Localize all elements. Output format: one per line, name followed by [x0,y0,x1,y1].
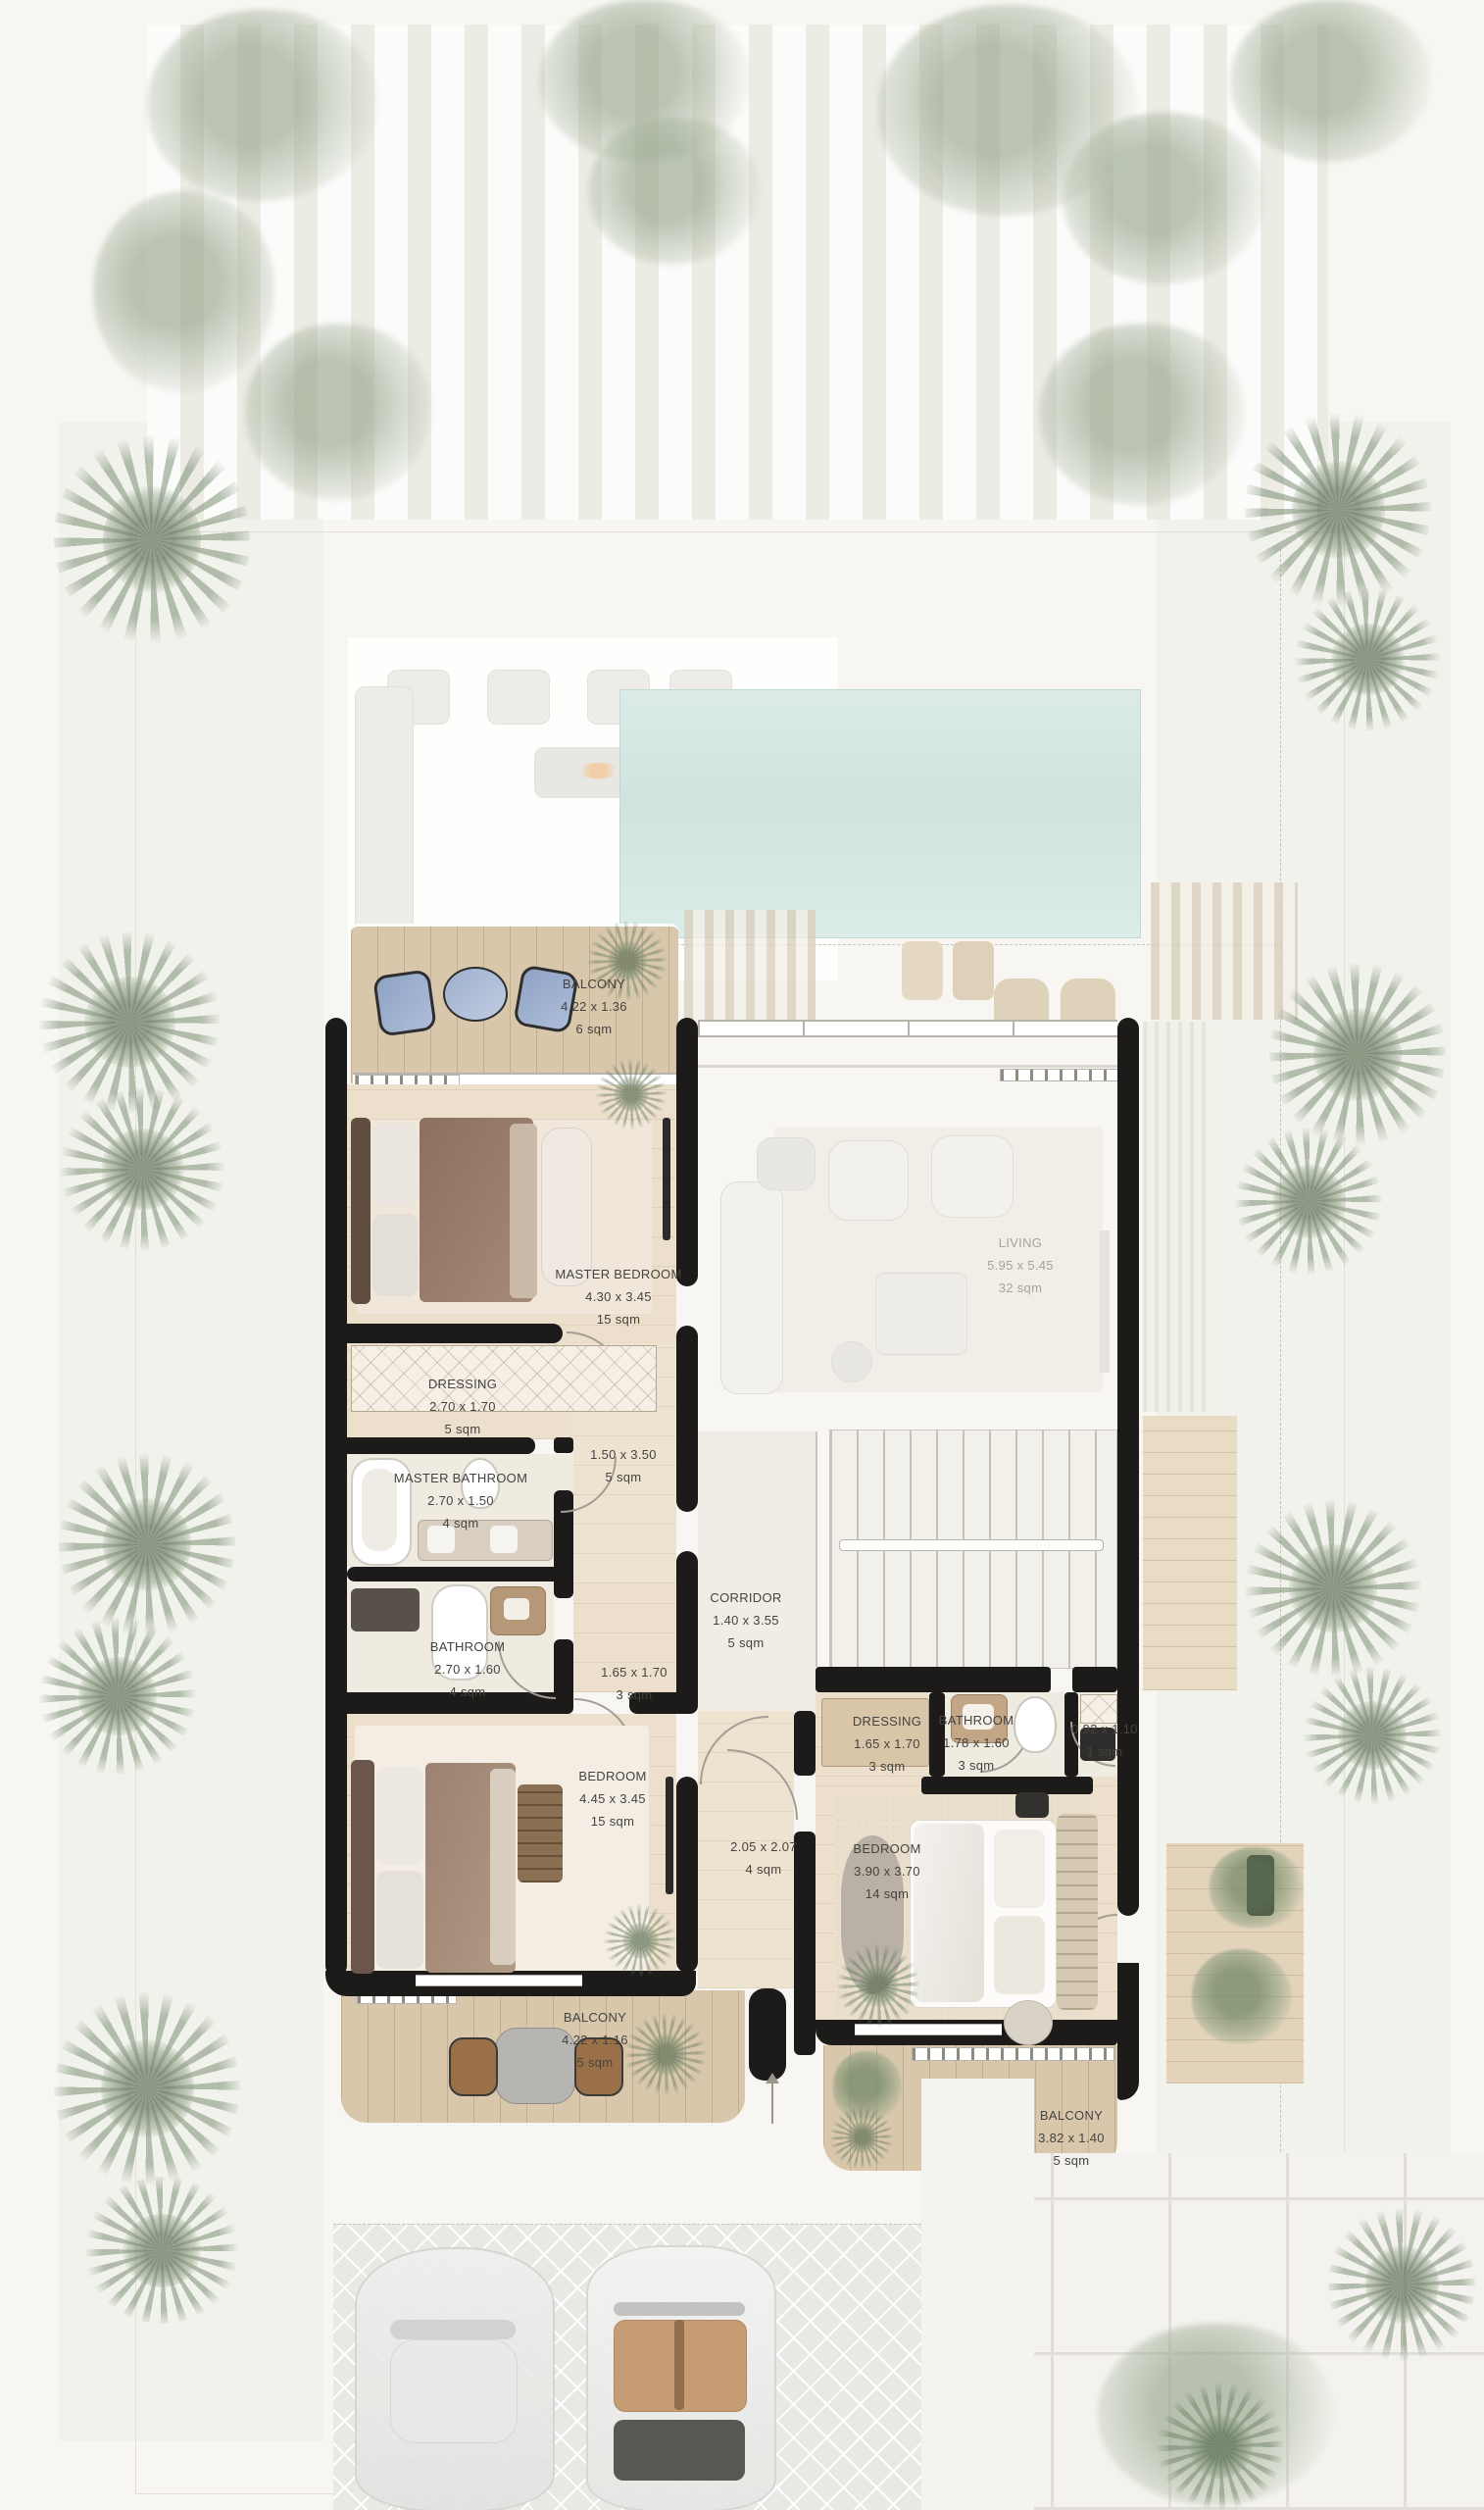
room-dims: 3.90 x 3.70 [853,1860,920,1882]
sink [504,1598,529,1620]
wall [347,1567,565,1581]
palm-icon [39,931,221,1113]
room-dims: 4.30 x 3.45 [555,1285,681,1308]
palm-icon [1294,588,1441,730]
wall [794,1832,816,2055]
path-arrow-head [766,2073,779,2083]
tree-icon [588,118,760,265]
room-dims: 1.40 x 3.55 [710,1609,781,1631]
tv-console [666,1777,673,1894]
tv-console [663,1118,670,1240]
room-label-master-bathroom: MASTER BATHROOM 2.70 x 1.50 4 sqm [394,1467,527,1534]
room-area: 14 sqm [853,1882,920,1905]
room-name: BEDROOM [578,1765,646,1787]
room-name: BALCONY [1038,2104,1105,2127]
room-label-dressing-left: DRESSING 2.70 x 1.70 5 sqm [428,1373,497,1440]
bed-duvet [914,1824,984,2002]
armchair [931,1135,1014,1218]
pool [619,689,1141,938]
room-area: 4 sqm [730,1858,797,1881]
balcony-table [443,967,508,1022]
bed-pillows [372,1214,418,1296]
room-label-dressing-right: DRESSING 1.65 x 1.70 3 sqm [853,1710,921,1778]
palm-icon [83,2177,240,2324]
wall [676,1777,698,1973]
wall [1072,1667,1117,1692]
room-dims: 0.92 x 1.10 [1071,1718,1138,1740]
window-bedroom-left [416,1975,582,1986]
plant-icon [837,1943,919,2028]
palm-icon [1328,2206,1475,2363]
wall [794,1711,816,1776]
room-area: 15 sqm [578,1810,646,1832]
room-label-upper-hall: 1.50 x 3.50 5 sqm [590,1443,657,1488]
room-area: 15 sqm [555,1308,681,1330]
bed-pillows [376,1871,423,1969]
tree-icon [1230,0,1431,162]
palm-icon [39,1618,196,1775]
coffee-table [875,1273,967,1355]
car-windshield [390,2320,516,2339]
wall [554,1437,573,1453]
plant-icon [596,1059,667,1129]
bed-sheet-fold [490,1769,516,1965]
tv-panel [1100,1230,1110,1373]
room-name: BALCONY [562,2006,628,2029]
balcony-chair [449,2037,498,2096]
room-label-corridor: CORRIDOR 1.40 x 3.55 5 sqm [710,1586,781,1654]
outdoor-sofa [355,686,414,938]
room-name: BALCONY [561,973,627,995]
wall [749,1988,786,2081]
fire-flame-icon [573,763,622,778]
wall [325,1324,563,1343]
room-name: MASTER BEDROOM [555,1263,681,1285]
bed-headboard [351,1760,374,1974]
room-label-bathroom-right: BATHROOM 1.78 x 1.60 3 sqm [939,1709,1014,1777]
palm-icon [59,1088,225,1250]
room-dims: 4.22 x 1.36 [561,995,627,1018]
sofa [720,1181,783,1394]
path-arrow [771,2083,773,2124]
car-seat-divider [674,2320,684,2410]
room-area: 5 sqm [590,1466,657,1488]
bed-sheet-fold [510,1124,537,1298]
bed-pillows [994,1916,1045,1994]
nightstand [1015,1792,1049,1818]
bathtub-inner [362,1469,397,1551]
room-area: 1 sqm [1071,1740,1138,1763]
room-area: 6 sqm [561,1018,627,1040]
living-rail-ticks [1000,1069,1119,1081]
room-dims: 2.70 x 1.60 [430,1658,506,1681]
room-label-vestibule-left: 1.65 x 1.70 3 sqm [601,1661,668,1706]
path-strip [921,2079,1034,2510]
tree-icon [147,10,377,201]
balcony-rail-bottom-right [912,2047,1114,2061]
room-name: LIVING [987,1231,1054,1254]
palm-icon [1157,2383,1284,2510]
room-label-bedroom-left: BEDROOM 4.45 x 3.45 15 sqm [578,1765,646,1832]
room-name: BATHROOM [430,1635,506,1658]
room-dims: 5.95 x 5.45 [987,1254,1054,1277]
bed-pillows [376,1767,423,1865]
tree-icon [245,324,431,500]
living-glazing [698,1020,1117,1037]
room-name: MASTER BATHROOM [394,1467,527,1489]
room-name: BEDROOM [853,1837,920,1860]
bed-pillows [994,1830,1045,1908]
room-name: DRESSING [853,1710,921,1732]
bush-icon [1210,1847,1304,1928]
stair-edge-line [816,1431,817,1667]
lounge-chair [487,670,550,725]
pool-towel [902,941,943,1000]
room-name: BATHROOM [939,1709,1014,1732]
bed-bench [518,1784,563,1882]
tree-icon [1064,113,1264,284]
room-name: CORRIDOR [710,1586,781,1609]
room-area: 5 sqm [1038,2149,1105,2172]
wall [676,1018,698,1286]
room-area: 3 sqm [939,1754,1014,1777]
wall [1117,1018,1139,1916]
room-dims: 3.82 x 1.40 [1038,2127,1105,2149]
tree-icon [1039,324,1245,505]
room-area: 3 sqm [601,1683,668,1706]
wall [676,1326,698,1512]
plant-icon [829,2106,894,2169]
room-area: 5 sqm [710,1631,781,1654]
room-label-hall-right: 2.05 x 2.07 4 sqm [730,1835,797,1881]
pool-towel [953,941,994,1000]
room-dims: 2.70 x 1.70 [428,1395,497,1418]
room-label-bedroom-right: BEDROOM 3.90 x 3.70 14 sqm [853,1837,920,1905]
planter-strip [1143,1022,1213,1412]
floor-corridor [698,1431,816,1711]
room-dims: 2.05 x 2.07 [730,1835,797,1858]
room-label-living: LIVING 5.95 x 5.45 32 sqm [987,1231,1054,1299]
bush-icon [1192,1949,1292,2043]
room-area: 4 sqm [430,1681,506,1703]
balcony-armchair [372,969,437,1036]
wardrobe [351,1345,657,1412]
wall [1117,1963,1139,2100]
room-dims: 1.78 x 1.60 [939,1732,1014,1754]
toilet [1014,1696,1057,1753]
plant-icon [625,2012,706,2096]
wall [325,1018,347,1977]
palm-icon [1269,961,1446,1147]
pouf [1004,2000,1053,2045]
wall [921,1777,1093,1794]
room-label-balcony-bottom-right: BALCONY 3.82 x 1.40 5 sqm [1038,2104,1105,2172]
room-label-bathroom-left: BATHROOM 2.70 x 1.60 4 sqm [430,1635,506,1703]
pouf [757,1137,816,1190]
plant-icon [604,1904,676,1977]
room-area: 4 sqm [394,1512,527,1534]
room-dims: 4.22 x 1.16 [562,2029,628,2051]
room-dims: 2.70 x 1.50 [394,1489,527,1512]
palm-icon [1304,1667,1441,1804]
palm-icon [54,1990,240,2186]
armchair [828,1140,909,1221]
car-windshield [614,2302,745,2316]
floor-plan-canvas: BALCONY 4.22 x 1.36 6 sqm MASTER BEDROOM… [0,0,1484,2510]
room-label-balcony-top: BALCONY 4.22 x 1.36 6 sqm [561,973,627,1040]
room-area: 5 sqm [562,2051,628,2074]
room-area: 5 sqm [428,1418,497,1440]
tree-icon [93,191,274,392]
room-dims: 1.65 x 1.70 [601,1661,668,1683]
palm-icon [1235,1128,1382,1275]
room-label-wc-right: 0.92 x 1.10 1 sqm [1071,1718,1138,1763]
palm-icon [59,1451,235,1637]
bed-pillows [372,1124,418,1206]
bed-headboard [351,1118,371,1304]
room-name: DRESSING [428,1373,497,1395]
room-label-master-bedroom: MASTER BEDROOM 4.30 x 3.45 15 sqm [555,1263,681,1330]
car-rear-deck [614,2420,745,2481]
bed-headboard [1057,1814,1098,2010]
room-area: 3 sqm [853,1755,921,1778]
room-dims: 4.45 x 3.45 [578,1787,646,1810]
stair-railing [839,1539,1104,1551]
wall [676,1551,698,1714]
room-label-balcony-bottom-left: BALCONY 4.22 x 1.16 5 sqm [562,2006,628,2074]
room-dims: 1.65 x 1.70 [853,1732,921,1755]
wall [816,1667,1051,1692]
car-cabin [390,2339,518,2443]
room-area: 32 sqm [987,1277,1054,1299]
living-glazing-line [698,1065,1117,1068]
palm-icon [54,431,250,647]
side-path-deck [1143,1416,1237,1690]
side-table [831,1341,872,1382]
wall-hung-vanity [351,1588,420,1631]
palm-icon [1245,412,1431,608]
room-dims: 1.50 x 3.50 [590,1443,657,1466]
palm-icon [1245,1500,1421,1677]
